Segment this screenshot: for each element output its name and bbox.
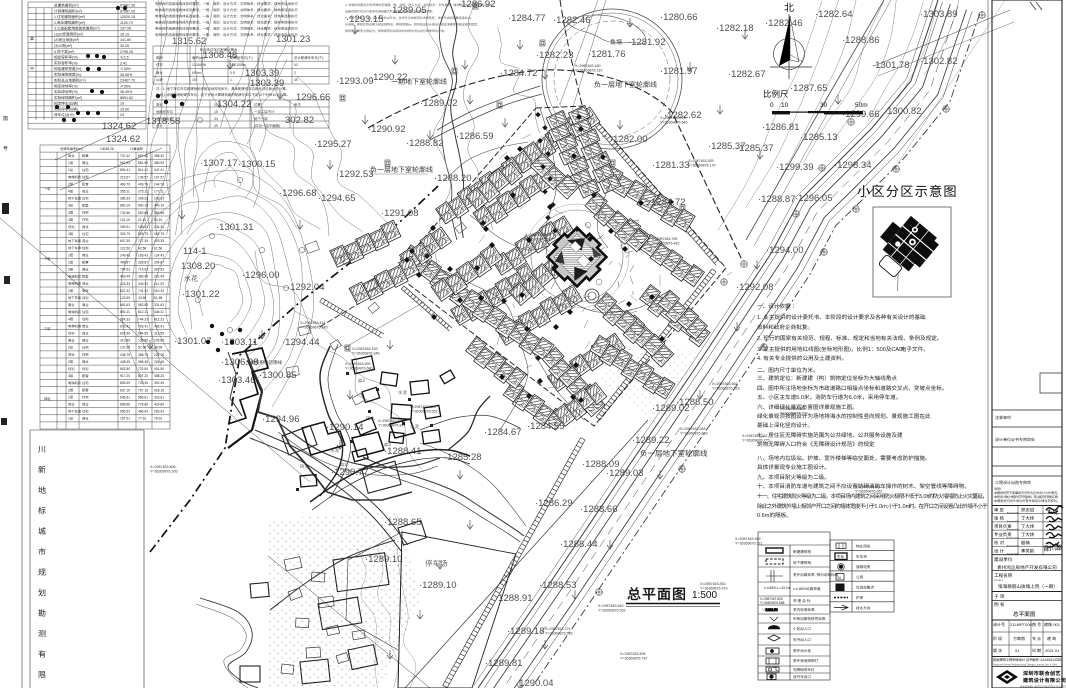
svg-text:E5: E5 (374, 16, 378, 20)
svg-text:·1282.64: ·1282.64 (815, 9, 853, 20)
svg-text:X=2987463.640: X=2987463.640 (598, 604, 623, 608)
svg-text:·1280.66: ·1280.66 (660, 12, 698, 23)
svg-text:Y=36369876.680: Y=36369876.680 (345, 367, 372, 371)
svg-text:722.50: 722.50 (138, 367, 148, 371)
svg-text:·1290.92: ·1290.92 (368, 124, 406, 135)
svg-text:21.10: 21.10 (138, 218, 146, 222)
svg-text:177.11: 177.11 (154, 190, 164, 194)
svg-text:824.33: 824.33 (120, 317, 130, 321)
svg-text:-001: -001 (1052, 622, 1061, 627)
svg-text:448.75: 448.75 (120, 353, 130, 357)
svg-text:i=4.88%: i=4.88% (793, 587, 807, 591)
svg-text:1: 1 (68, 395, 70, 399)
svg-text:141.80: 141.80 (120, 38, 131, 42)
svg-text:·1293.09: ·1293.09 (336, 76, 374, 87)
svg-text:Examined By: Examined By (1007, 554, 1019, 556)
svg-text:5.: 5. (345, 16, 348, 20)
svg-text:0: 0 (770, 102, 774, 109)
svg-text:Y=36369876.629: Y=36369876.629 (680, 432, 707, 436)
svg-text:10: 10 (272, 93, 276, 97)
svg-text:·1292.04: ·1292.04 (287, 282, 325, 293)
svg-text:): ) (77, 102, 78, 106)
svg-text:(m²): (m²) (79, 21, 86, 25)
svg-text:418.16: 418.16 (154, 388, 164, 392)
svg-text:·1286.29: ·1286.29 (535, 498, 573, 509)
svg-text:78.91: 78.91 (154, 417, 162, 421)
svg-text:·1285.13: ·1285.13 (800, 132, 838, 143)
svg-text:57.65: 57.65 (138, 346, 146, 350)
svg-text:2.5: 2.5 (124, 56, 129, 60)
svg-text:·1282.23: ·1282.23 (536, 50, 574, 61)
svg-text:·1288.53: ·1288.53 (539, 580, 577, 591)
svg-text:312.55: 312.55 (154, 332, 164, 336)
svg-text:224.75: 224.75 (154, 353, 164, 357)
svg-text:692.11: 692.11 (120, 310, 130, 314)
svg-text:793.41: 793.41 (138, 324, 148, 328)
svg-text:101.10: 101.10 (120, 218, 130, 222)
svg-text:157.95: 157.95 (120, 27, 131, 31)
svg-text:215.57: 215.57 (120, 175, 130, 179)
svg-text:·1284.72: ·1284.72 (500, 68, 538, 79)
svg-text:·1288.86: ·1288.86 (842, 35, 880, 46)
svg-text:5.0: 5.0 (796, 395, 804, 401)
svg-text:Y=36369878.888: Y=36369878.888 (760, 601, 785, 605)
svg-text:·1296.00: ·1296.00 (242, 270, 280, 281)
svg-text:50.10: 50.10 (154, 218, 162, 222)
svg-text:566.61: 566.61 (138, 395, 148, 399)
svg-text:Y=36369876.662: Y=36369876.662 (855, 490, 882, 494)
svg-text:(m²): (m²) (76, 9, 83, 13)
svg-text:42.56: 42.56 (138, 246, 146, 250)
svg-text:814.41: 814.41 (138, 168, 148, 172)
svg-text:2: 2 (68, 182, 70, 186)
svg-text:6m: 6m (408, 23, 413, 27)
svg-text:794.53: 794.53 (120, 268, 130, 272)
svg-text:1.: 1. (54, 15, 57, 19)
svg-text:3.: 3. (757, 347, 762, 353)
svg-text:1324.62: 1324.62 (106, 134, 140, 145)
svg-text:49: 49 (294, 78, 298, 82)
svg-text:2.42: 2.42 (120, 61, 127, 65)
svg-text:30.25: 30.25 (120, 44, 129, 48)
svg-text:323.61: 323.61 (154, 395, 164, 399)
svg-text:·1290.22: ·1290.22 (370, 72, 408, 83)
svg-text:582.63: 582.63 (138, 303, 148, 307)
svg-text:): ) (849, 347, 851, 353)
svg-text:401.50: 401.50 (154, 367, 164, 371)
svg-text:403.35: 403.35 (154, 239, 164, 243)
svg-text:448.45: 448.45 (120, 360, 130, 364)
svg-text:15.90: 15.90 (120, 108, 129, 112)
svg-text:X=2987463.849: X=2987463.849 (525, 233, 550, 237)
svg-text:X=2987463.999: X=2987463.999 (345, 362, 370, 366)
svg-text:(2): (2) (54, 38, 58, 42)
svg-text:49: 49 (214, 124, 218, 128)
svg-text:X=2987463.562: X=2987463.562 (712, 382, 737, 386)
svg-text:61.56: 61.56 (154, 246, 162, 250)
svg-text:·1284.67: ·1284.67 (484, 427, 522, 438)
svg-text:4: 4 (68, 218, 70, 222)
svg-text:2021.01: 2021.01 (1045, 648, 1060, 653)
svg-text:(%): (%) (72, 84, 78, 88)
svg-text:409.79: 409.79 (138, 182, 148, 186)
svg-text:·1282.18: ·1282.18 (716, 23, 754, 34)
svg-text:303.79: 303.79 (120, 232, 130, 236)
svg-text:4: 4 (68, 317, 70, 321)
svg-text:Y=36369876.775: Y=36369876.775 (742, 439, 769, 443)
svg-text:646.61: 646.61 (120, 395, 130, 399)
svg-text:Y=36369876.187: Y=36369876.187 (575, 69, 602, 73)
svg-text:Y=36369876.346: Y=36369876.346 (352, 352, 379, 356)
svg-text:(m²): (m²) (199, 56, 205, 60)
svg-text:4.: 4. (54, 50, 57, 54)
svg-text:105.85: 105.85 (154, 339, 164, 343)
svg-text:(%): (%) (76, 73, 82, 77)
svg-text:662.63: 662.63 (120, 303, 130, 307)
svg-text:·1306.08: ·1306.08 (221, 357, 259, 368)
svg-text:·1296.05: ·1296.05 (795, 193, 833, 204)
svg-text:·1302.82: ·1302.82 (920, 56, 958, 67)
svg-text:302.82: 302.82 (285, 115, 314, 126)
svg-text:·1300.82: ·1300.82 (884, 106, 922, 117)
svg-text:Y=36369876.223: Y=36369876.223 (712, 387, 739, 391)
svg-text:(m²): (m²) (68, 50, 75, 54)
svg-text:440.19: 440.19 (154, 204, 164, 208)
svg-text:·1288.91: ·1288.91 (495, 593, 533, 604)
svg-text:1.0m;: 1.0m; (874, 504, 888, 510)
svg-text:X=2987463.414: X=2987463.414 (300, 321, 325, 325)
svg-text:134.31: 134.31 (154, 225, 164, 229)
svg-text:X=2987463.935: X=2987463.935 (688, 159, 713, 163)
svg-text:346.11: 346.11 (154, 310, 164, 314)
svg-text:169.43: 169.43 (138, 253, 148, 257)
svg-text:3.0h: 3.0h (919, 494, 930, 500)
svg-text:·1288.09: ·1288.09 (582, 459, 620, 470)
svg-text:·1303.89: ·1303.89 (920, 9, 958, 20)
svg-text:(3): (3) (54, 44, 58, 48)
svg-text:412.33: 412.33 (154, 317, 164, 321)
svg-text:1:500: 1:500 (692, 590, 717, 601)
svg-text:01: 01 (1015, 648, 1020, 653)
svg-text:·1303.46: ·1303.46 (218, 375, 256, 386)
svg-text:107.57: 107.57 (154, 175, 164, 179)
svg-text:(m²): (m²) (76, 96, 83, 100)
svg-text:737.42: 737.42 (120, 154, 130, 158)
svg-text:727.35: 727.35 (138, 239, 148, 243)
svg-text:Y=36369876.170: Y=36369876.170 (688, 164, 715, 168)
svg-text:447.41: 447.41 (154, 168, 164, 172)
svg-text::: : (1000, 487, 1001, 491)
svg-text:·1292.53: ·1292.53 (336, 169, 374, 180)
svg-text:4: 4 (68, 232, 70, 236)
svg-text:·1288.50: ·1288.50 (676, 397, 714, 408)
svg-text:1: 1 (230, 78, 232, 82)
svg-text:·1301.78: ·1301.78 (872, 60, 910, 71)
svg-text:·1286.59: ·1286.59 (456, 131, 494, 142)
svg-text:1.0m: 1.0m (898, 504, 911, 510)
svg-text:3: 3 (68, 204, 70, 208)
svg-text:·1298.34: ·1298.34 (834, 160, 872, 171)
svg-text:12345.96: 12345.96 (192, 63, 206, 67)
svg-text:): ) (252, 56, 253, 60)
svg-text:211.33: 211.33 (154, 282, 164, 286)
svg-text:2: 2 (68, 388, 70, 392)
svg-text:157.91: 157.91 (120, 417, 130, 421)
svg-text:Y=36369876.993: Y=36369876.993 (598, 609, 625, 613)
svg-text:·1294.65: ·1294.65 (318, 193, 356, 204)
svg-text:600m²: 600m² (192, 71, 202, 75)
svg-text:16.15: 16.15 (120, 32, 129, 36)
svg-text:0.5m: 0.5m (468, 3, 475, 7)
svg-text:368.42: 368.42 (154, 154, 164, 158)
svg-text:210.85: 210.85 (120, 339, 130, 343)
svg-text:·1284.55: ·1284.55 (527, 421, 565, 432)
svg-text:(m²): (m²) (77, 32, 84, 36)
svg-text:10: 10 (258, 93, 262, 97)
svg-text:: A144081435D: : A144081435D (1039, 658, 1063, 662)
svg-text:21LMPT006: 21LMPT006 (1010, 622, 1033, 627)
svg-text:Examined By: Examined By (1007, 529, 1019, 531)
svg-text:624.55: 624.55 (120, 332, 130, 336)
svg-text:·1282.46: ·1282.46 (553, 15, 591, 26)
svg-text:CAD: CAD (891, 347, 903, 353)
svg-text:1100.70: 1100.70 (120, 21, 133, 25)
svg-text:50m: 50m (855, 102, 868, 109)
svg-text:·1285.37: ·1285.37 (736, 143, 774, 154)
svg-text:8591.62: 8591.62 (120, 96, 133, 100)
svg-text:·1300.15: ·1300.15 (238, 159, 276, 170)
svg-text:X=2987463.878: X=2987463.878 (660, 116, 685, 120)
svg-text:Y=36369876.305: Y=36369876.305 (150, 470, 177, 474)
svg-text:Examined By: Examined By (1007, 513, 1019, 515)
svg-text:·1289.22: ·1289.22 (632, 435, 670, 446)
svg-text:·1290.04: ·1290.04 (516, 678, 554, 688)
svg-text:757.16: 757.16 (138, 388, 148, 392)
svg-text:725.49: 725.49 (138, 381, 148, 385)
svg-text:·1301.22: ·1301.22 (182, 289, 220, 300)
svg-text:·1307.17: ·1307.17 (200, 158, 238, 169)
svg-text:1: 1 (868, 347, 871, 353)
svg-text:2: 2 (68, 346, 70, 350)
svg-text:224.45: 224.45 (154, 360, 164, 364)
svg-text:67987.26: 67987.26 (120, 9, 135, 13)
svg-text:837.16: 837.16 (120, 388, 130, 392)
svg-text:463.49: 463.49 (120, 275, 130, 279)
svg-text:·1299.66: ·1299.66 (842, 109, 880, 120)
svg-text:(%): (%) (72, 56, 78, 60)
svg-text:Examined By: Examined By (1007, 546, 1019, 548)
svg-text:(m²): (m²) (93, 27, 100, 31)
svg-text:4: 4 (68, 190, 70, 194)
svg-text:343.33: 343.33 (138, 282, 148, 286)
svg-text:368.45: 368.45 (138, 360, 148, 364)
svg-text:837.20: 837.20 (138, 374, 148, 378)
svg-text:·1289.81: ·1289.81 (485, 658, 523, 669)
svg-text:·1288.82: ·1288.82 (406, 138, 444, 149)
svg-text:368.75: 368.75 (138, 353, 148, 357)
svg-text:·1295.27: ·1295.27 (314, 139, 352, 150)
svg-text:2: 2 (68, 253, 70, 257)
svg-text:231.49: 231.49 (154, 275, 164, 279)
svg-text:778.86: 778.86 (138, 403, 148, 407)
svg-text:67987.26: 67987.26 (120, 4, 135, 8)
svg-text:204.87: 204.87 (154, 261, 164, 265)
svg-text:122.56: 122.56 (120, 246, 130, 250)
svg-text:269.31: 269.31 (120, 225, 130, 229)
svg-text:Y=36369876.533: Y=36369876.533 (545, 632, 572, 636)
svg-text:X=2987463.180: X=2987463.180 (575, 64, 600, 68)
svg-text:19: 19 (120, 102, 124, 106)
svg-text:423.33: 423.33 (120, 282, 130, 286)
svg-text:151.79: 151.79 (154, 232, 164, 236)
svg-text:X=2987463.806: X=2987463.806 (150, 465, 175, 469)
svg-text:(m²): (m²) (79, 15, 86, 19)
svg-text:652.66: 652.66 (138, 211, 148, 215)
svg-text:429.86: 429.86 (154, 403, 164, 407)
svg-text:436.41: 436.41 (154, 324, 164, 328)
svg-text:714.53: 714.53 (138, 268, 148, 272)
svg-text:408.87: 408.87 (120, 261, 130, 265)
svg-text:B5T: B5T (357, 16, 363, 20)
svg-text:·1282.46: ·1282.46 (765, 18, 803, 29)
svg-text:): ) (322, 56, 323, 60)
svg-text:X=2987463.159: X=2987463.159 (352, 347, 377, 351)
svg-text:873.41: 873.41 (120, 324, 130, 328)
svg-text:·1282.00: ·1282.00 (610, 134, 648, 145)
svg-text:397.53: 397.53 (154, 268, 164, 272)
svg-text:1315.62: 1315.62 (172, 36, 206, 47)
svg-text:1308.20: 1308.20 (181, 261, 215, 272)
svg-text:0.6m: 0.6m (757, 513, 770, 519)
svg-text:X=2987463.508: X=2987463.508 (620, 652, 645, 656)
svg-text:114-1: 114-1 (183, 246, 207, 257)
svg-text:1: 1 (68, 168, 70, 172)
svg-text:·1294.44: ·1294.44 (282, 337, 320, 348)
svg-text:63: 63 (294, 63, 298, 67)
svg-text:157: 157 (192, 78, 198, 82)
svg-text:383.49: 383.49 (138, 275, 148, 279)
svg-text:124.43: 124.43 (154, 253, 164, 257)
svg-text:275.11: 275.11 (138, 190, 148, 194)
svg-text:45%: 45% (124, 67, 132, 71)
svg-text:·1292.08: ·1292.08 (736, 282, 774, 293)
svg-text:Y=36369876.482: Y=36369876.482 (652, 242, 679, 246)
svg-text:366.66: 366.66 (154, 211, 164, 215)
svg-text:2021: 2021 (214, 103, 222, 107)
svg-text:6.0: 6.0 (849, 395, 857, 401)
svg-text:(m²): (m²) (79, 79, 86, 83)
svg-text:821.32: 821.32 (120, 289, 130, 293)
svg-text:28.50%: 28.50% (120, 73, 133, 77)
svg-text:/100m²: /100m² (235, 63, 246, 67)
svg-text:(1)20: (1)20 (54, 32, 62, 36)
svg-text:193.33: 193.33 (154, 197, 164, 201)
svg-text:·1281.92: ·1281.92 (628, 37, 666, 48)
svg-text:2: 2 (68, 268, 70, 272)
svg-text:881.93: 881.93 (138, 161, 148, 165)
svg-text:1296.66: 1296.66 (296, 92, 330, 103)
svg-text:130.85: 130.85 (138, 339, 148, 343)
svg-text:·1286.81: ·1286.81 (762, 122, 800, 133)
svg-text:·1294.00: ·1294.00 (766, 245, 804, 256)
svg-text:1308.48: 1308.48 (203, 50, 237, 61)
svg-text:(m²): (m²) (77, 147, 83, 151)
svg-text:306.33: 306.33 (138, 197, 148, 201)
svg-text:Examined By: Examined By (1007, 521, 1019, 523)
svg-text:): ) (279, 124, 280, 128)
svg-text:·1300.85: ·1300.85 (259, 370, 297, 381)
svg-text:43.55: 43.55 (138, 296, 146, 300)
svg-text:0.5: 0.5 (230, 71, 235, 75)
svg-text:X=2987463.765: X=2987463.765 (652, 237, 677, 241)
svg-text:4.: 4. (757, 356, 762, 362)
svg-text:244.79: 244.79 (154, 182, 164, 186)
svg-text:480.93: 480.93 (154, 161, 164, 165)
svg-text:): ) (77, 108, 78, 112)
svg-text:·1289.02: ·1289.02 (420, 98, 458, 109)
svg-text:4.88%: 4.88% (484, 3, 493, 7)
svg-text:1: 1 (68, 161, 70, 165)
svg-text:12020.15: 12020.15 (120, 15, 135, 19)
svg-text:·1299.39: ·1299.39 (776, 162, 814, 173)
svg-text:283.93: 283.93 (154, 410, 164, 414)
svg-text:·1288.66: ·1288.66 (580, 504, 618, 515)
svg-text:894.41: 894.41 (120, 168, 130, 172)
svg-text:386.33: 386.33 (120, 197, 130, 201)
svg-text:858.86: 858.86 (120, 403, 130, 407)
svg-text:3.: 3. (54, 27, 57, 31)
svg-text:807.35: 807.35 (120, 239, 130, 243)
svg-text:741.32: 741.32 (138, 289, 148, 293)
svg-text:X=2987463.269: X=2987463.269 (735, 537, 760, 541)
svg-text:612.11: 612.11 (138, 310, 148, 314)
svg-text:C-2: C-2 (366, 16, 371, 20)
svg-text:1288.50: 1288.50 (765, 608, 777, 612)
svg-text:410.32: 410.32 (154, 289, 164, 293)
svg-text:·1287.65: ·1287.65 (790, 83, 828, 94)
svg-text:36.40%: 36.40% (120, 90, 133, 94)
svg-text:1: 1 (68, 417, 70, 421)
svg-text:(m²): (m²) (66, 44, 73, 48)
svg-text:566.93: 566.93 (120, 410, 130, 414)
svg-text:1301.23: 1301.23 (276, 34, 310, 45)
svg-text:458.20: 458.20 (154, 374, 164, 378)
svg-text:·1301.31: ·1301.31 (216, 222, 254, 233)
svg-text:1: 1 (68, 289, 70, 293)
svg-text:National A-level Architectural: National A-level Architectural Design Li… (993, 663, 1057, 667)
svg-text:3: 3 (68, 211, 70, 215)
svg-text:1: 1 (68, 261, 70, 265)
svg-text:·1296.68: ·1296.68 (279, 188, 317, 199)
svg-text:4.: 4. (345, 3, 348, 7)
svg-text:X=2987463.721: X=2987463.721 (545, 627, 570, 631)
svg-text:X=2987463.830: X=2987463.830 (700, 582, 725, 586)
svg-text:77.91: 77.91 (138, 417, 146, 421)
svg-text:2.: 2. (757, 336, 762, 342)
svg-text:657.42: 657.42 (138, 154, 148, 158)
svg-text:·1281.33: ·1281.33 (652, 160, 690, 171)
svg-text:917.20: 917.20 (120, 374, 130, 378)
svg-text:880.19: 880.19 (120, 204, 130, 208)
svg-text:·1284.72: ·1284.72 (648, 197, 686, 208)
svg-text:·1303.11: ·1303.11 (221, 337, 258, 348)
svg-text:3: 3 (68, 374, 70, 378)
svg-text:35%: 35% (124, 84, 132, 88)
svg-text:1304.22: 1304.22 (217, 99, 251, 110)
svg-text:1.: 1. (163, 87, 166, 91)
svg-text:500: 500 (877, 347, 886, 353)
svg-text:): ) (73, 113, 74, 117)
